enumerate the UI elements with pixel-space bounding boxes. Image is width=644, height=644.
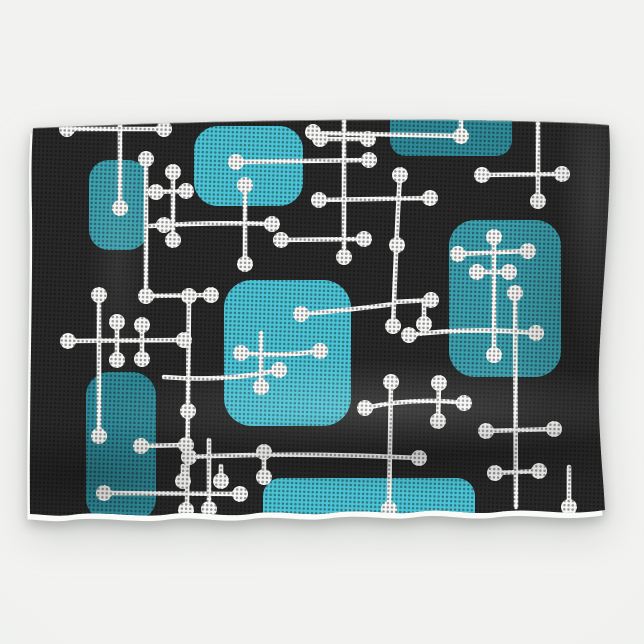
towel-scene: [0, 0, 644, 644]
product-photo: [0, 0, 644, 644]
fold-lighting: [20, 100, 630, 530]
towel: [20, 100, 630, 533]
